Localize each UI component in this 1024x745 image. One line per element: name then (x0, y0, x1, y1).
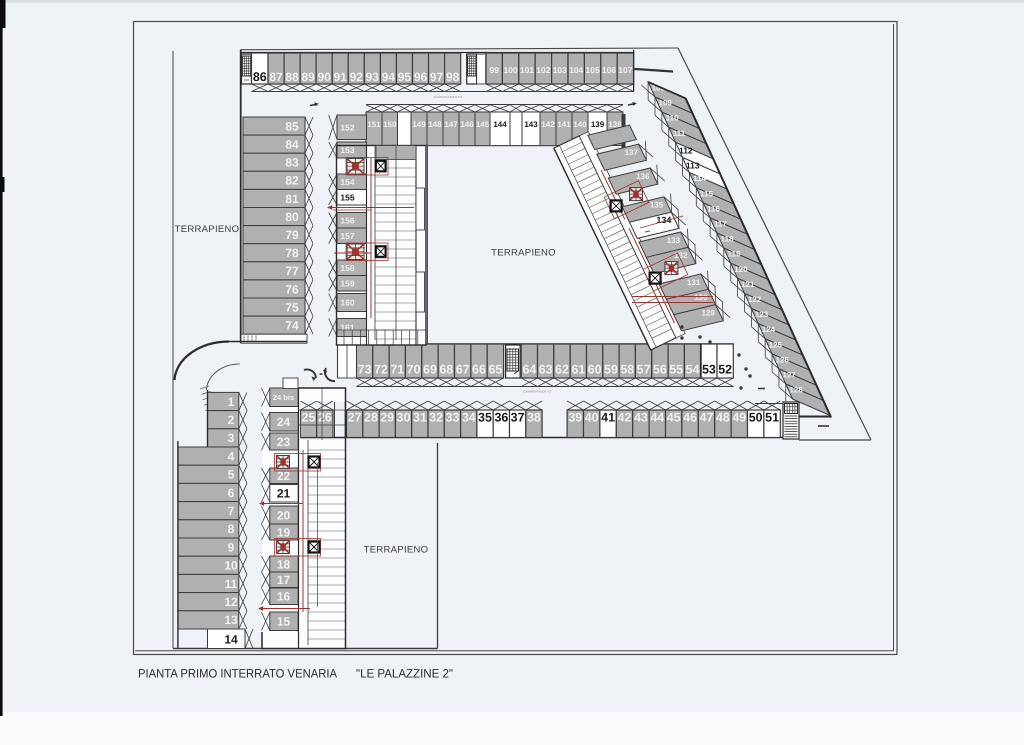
svg-text:148: 148 (428, 120, 442, 129)
svg-text:112: 112 (679, 146, 693, 156)
svg-text:45: 45 (667, 411, 681, 425)
svg-text:78: 78 (285, 246, 299, 260)
svg-text:71: 71 (390, 363, 404, 377)
svg-text:60: 60 (588, 363, 602, 377)
svg-text:59: 59 (604, 363, 618, 377)
svg-text:26: 26 (318, 411, 332, 425)
svg-text:82: 82 (285, 174, 299, 188)
svg-text:72: 72 (374, 363, 388, 377)
svg-text:21: 21 (277, 487, 291, 501)
svg-text:118: 118 (721, 235, 734, 244)
svg-text:146: 146 (460, 120, 474, 129)
svg-text:149: 149 (412, 120, 426, 129)
svg-text:122: 122 (748, 295, 762, 304)
svg-text:14: 14 (224, 632, 238, 646)
svg-text:110: 110 (666, 114, 679, 123)
svg-text:97: 97 (430, 70, 444, 84)
svg-text:3: 3 (228, 431, 235, 445)
svg-text:79: 79 (285, 228, 299, 242)
svg-text:127: 127 (782, 371, 796, 380)
svg-text:70: 70 (407, 363, 421, 377)
svg-text:150: 150 (383, 120, 397, 129)
svg-text:102: 102 (536, 65, 550, 75)
svg-text:145: 145 (476, 120, 490, 129)
svg-text:16: 16 (277, 590, 291, 604)
svg-text:116: 116 (707, 204, 720, 213)
svg-text:74: 74 (285, 319, 299, 333)
svg-text:86: 86 (253, 70, 267, 84)
svg-text:13: 13 (224, 613, 238, 627)
svg-text:85: 85 (285, 119, 299, 133)
svg-text:67: 67 (456, 363, 470, 377)
svg-text:68: 68 (439, 363, 453, 377)
svg-text:42: 42 (618, 411, 632, 425)
svg-text:114: 114 (693, 174, 706, 183)
svg-text:17: 17 (277, 573, 291, 587)
svg-text:2: 2 (228, 413, 235, 427)
svg-text:101: 101 (520, 65, 534, 75)
svg-text:100: 100 (504, 65, 518, 75)
svg-text:111: 111 (673, 129, 686, 138)
svg-text:18: 18 (277, 557, 291, 571)
svg-text:124: 124 (762, 325, 776, 334)
svg-text:69: 69 (423, 363, 437, 377)
svg-text:39: 39 (568, 411, 582, 425)
svg-text:58: 58 (620, 363, 634, 377)
svg-text:136: 136 (636, 172, 650, 181)
svg-text:20: 20 (277, 508, 291, 522)
svg-text:96: 96 (414, 70, 428, 84)
svg-text:47: 47 (700, 411, 714, 425)
svg-text:106: 106 (602, 65, 616, 75)
svg-text:93: 93 (366, 70, 380, 84)
svg-text:125: 125 (769, 340, 783, 349)
svg-text:37: 37 (511, 411, 525, 425)
svg-text:55: 55 (669, 363, 683, 377)
svg-text:80: 80 (285, 210, 299, 224)
svg-text:160: 160 (340, 298, 354, 308)
svg-text:32: 32 (429, 411, 443, 425)
svg-text:103: 103 (553, 65, 567, 75)
svg-text:98: 98 (446, 70, 460, 84)
svg-text:PIANTA PRIMO INTERRATO VENARIA: PIANTA PRIMO INTERRATO VENARIA (138, 667, 338, 681)
svg-text:159: 159 (340, 278, 354, 288)
svg-text:147: 147 (444, 120, 458, 129)
svg-text:27: 27 (348, 411, 362, 425)
svg-text:107: 107 (618, 65, 632, 75)
svg-text:6: 6 (228, 486, 235, 500)
svg-text:63: 63 (539, 363, 553, 377)
svg-text:41: 41 (601, 411, 615, 425)
svg-text:117: 117 (714, 220, 727, 229)
svg-text:TERRAPIENO: TERRAPIENO (364, 545, 429, 556)
svg-text:158: 158 (340, 263, 354, 273)
svg-text:15: 15 (277, 615, 291, 629)
svg-text:132: 132 (674, 251, 688, 260)
svg-text:8: 8 (228, 522, 235, 536)
svg-text:48: 48 (716, 411, 730, 425)
svg-text:90: 90 (318, 70, 332, 84)
svg-text:25: 25 (302, 411, 316, 425)
svg-text:57: 57 (637, 363, 651, 377)
svg-text:61: 61 (571, 363, 585, 377)
svg-text:24: 24 (277, 415, 291, 429)
svg-text:99: 99 (489, 65, 499, 75)
svg-text:38: 38 (527, 411, 541, 425)
svg-text:"LE PALAZZINE 2": "LE PALAZZINE 2" (356, 667, 453, 681)
svg-text:1: 1 (228, 395, 235, 409)
svg-text:109: 109 (659, 99, 673, 108)
svg-text:89: 89 (301, 70, 315, 84)
svg-text:50: 50 (749, 411, 763, 425)
svg-text:119: 119 (728, 250, 741, 259)
svg-text:152: 152 (340, 122, 354, 132)
svg-text:135: 135 (650, 201, 664, 210)
svg-text:7: 7 (228, 504, 235, 518)
svg-text:144: 144 (493, 120, 507, 129)
svg-text:54: 54 (686, 363, 700, 377)
svg-text:65: 65 (488, 363, 502, 377)
svg-text:CAMMINAMENTO: CAMMINAMENTO (434, 95, 463, 99)
svg-text:35: 35 (478, 411, 492, 425)
svg-text:33: 33 (446, 411, 460, 425)
svg-text:23: 23 (277, 435, 291, 449)
svg-text:104: 104 (569, 65, 583, 75)
svg-text:75: 75 (285, 300, 299, 314)
svg-text:113: 113 (686, 161, 700, 171)
svg-text:83: 83 (285, 156, 299, 170)
svg-text:133: 133 (667, 236, 681, 245)
svg-text:140: 140 (573, 120, 587, 129)
svg-text:10: 10 (224, 559, 238, 573)
svg-text:TERRAPIENO: TERRAPIENO (491, 248, 556, 259)
svg-text:43: 43 (634, 411, 648, 425)
svg-text:49: 49 (732, 411, 746, 425)
svg-text:121: 121 (741, 280, 755, 289)
svg-text:9: 9 (228, 540, 235, 554)
svg-text:TERRAPIENO: TERRAPIENO (175, 224, 240, 235)
svg-text:34: 34 (462, 411, 476, 425)
svg-text:28: 28 (364, 411, 378, 425)
svg-text:153: 153 (340, 145, 354, 155)
svg-text:31: 31 (413, 411, 427, 425)
svg-text:154: 154 (340, 177, 354, 187)
svg-text:77: 77 (285, 264, 299, 278)
svg-text:46: 46 (683, 411, 697, 425)
svg-text:36: 36 (494, 411, 508, 425)
svg-text:81: 81 (285, 192, 299, 206)
svg-text:130: 130 (694, 293, 708, 302)
svg-text:115: 115 (700, 189, 713, 198)
svg-text:87: 87 (269, 70, 283, 84)
svg-text:161: 161 (340, 323, 354, 333)
svg-text:CAMMINAMENTO: CAMMINAMENTO (523, 390, 552, 394)
svg-text:73: 73 (358, 363, 372, 377)
svg-text:52: 52 (718, 363, 732, 377)
svg-text:123: 123 (755, 310, 769, 319)
svg-text:157: 157 (340, 231, 354, 241)
svg-text:88: 88 (285, 70, 299, 84)
svg-text:51: 51 (765, 411, 779, 425)
svg-text:105: 105 (586, 65, 600, 75)
svg-text:24 bis: 24 bis (273, 393, 294, 402)
svg-text:95: 95 (398, 70, 412, 84)
svg-text:40: 40 (585, 411, 599, 425)
svg-text:19: 19 (277, 525, 291, 539)
svg-text:11: 11 (225, 577, 238, 591)
svg-text:155: 155 (340, 192, 354, 202)
svg-text:151: 151 (367, 120, 381, 129)
svg-text:44: 44 (650, 411, 664, 425)
svg-text:142: 142 (541, 120, 555, 129)
svg-text:120: 120 (734, 265, 748, 274)
svg-text:92: 92 (350, 70, 364, 84)
svg-text:30: 30 (397, 411, 411, 425)
svg-text:64: 64 (522, 363, 536, 377)
svg-text:91: 91 (334, 70, 348, 84)
svg-text:131: 131 (687, 278, 701, 287)
svg-text:84: 84 (285, 138, 299, 152)
svg-text:137: 137 (625, 148, 639, 157)
svg-text:156: 156 (340, 215, 354, 225)
svg-text:66: 66 (472, 363, 486, 377)
svg-text:141: 141 (557, 120, 571, 129)
svg-text:56: 56 (653, 363, 667, 377)
svg-text:62: 62 (555, 363, 569, 377)
svg-text:128: 128 (789, 386, 803, 395)
svg-text:4: 4 (228, 449, 235, 463)
svg-text:12: 12 (224, 595, 238, 609)
svg-text:53: 53 (702, 363, 716, 377)
svg-text:76: 76 (285, 282, 299, 296)
svg-text:29: 29 (380, 411, 394, 425)
svg-text:139: 139 (591, 120, 605, 129)
svg-text:129: 129 (702, 309, 716, 318)
svg-text:126: 126 (776, 355, 790, 364)
svg-text:94: 94 (382, 70, 396, 84)
svg-text:143: 143 (524, 120, 538, 129)
svg-text:5: 5 (228, 468, 235, 482)
